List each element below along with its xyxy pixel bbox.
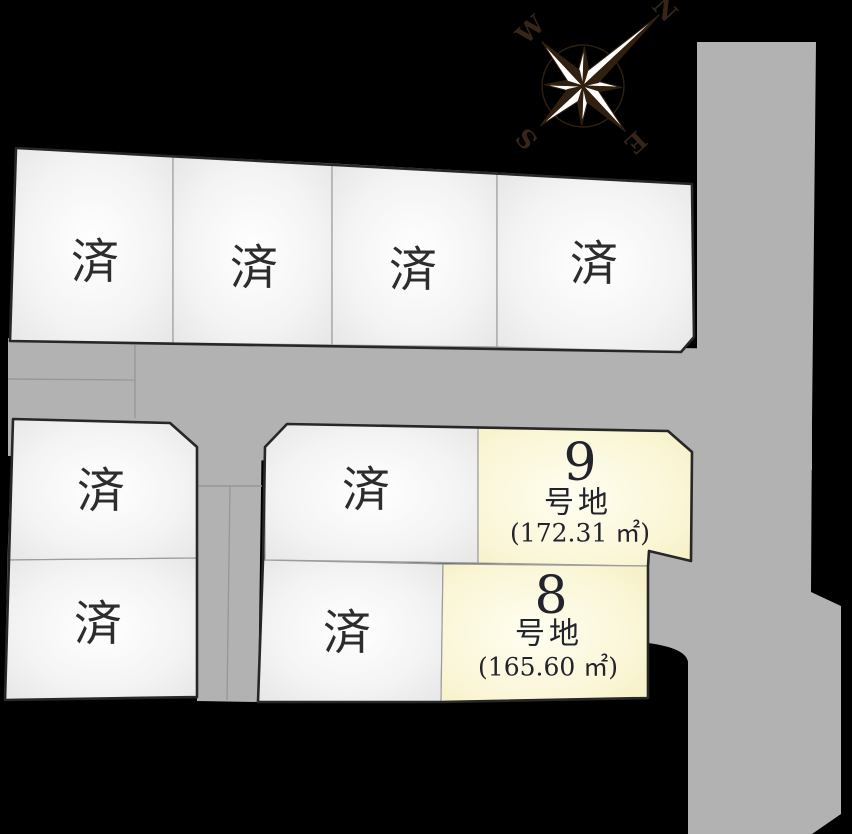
- sold-label: 済: [342, 462, 390, 518]
- sold-label: 済: [570, 236, 618, 292]
- sold-label: 済: [74, 596, 122, 652]
- lane-line: [8, 379, 135, 380]
- plot-8-suffix: 号地: [515, 617, 583, 652]
- sold-label: 済: [323, 605, 371, 661]
- sold-label: 済: [389, 242, 437, 298]
- plot-9-number: 9: [563, 433, 596, 493]
- sold-label: 済: [77, 463, 125, 519]
- sold-label: 済: [230, 240, 278, 296]
- plot-9-area: (172.31 ㎡): [510, 519, 650, 548]
- sold-label: 済: [71, 234, 119, 290]
- plot-8-area: (165.60 ㎡): [478, 653, 618, 682]
- plot-9-suffix: 号地: [544, 486, 612, 521]
- plot-map: 済 済 済 済 済 済 済 済 9 号地 (172.31 ㎡) 8 号地 (16…: [0, 0, 852, 834]
